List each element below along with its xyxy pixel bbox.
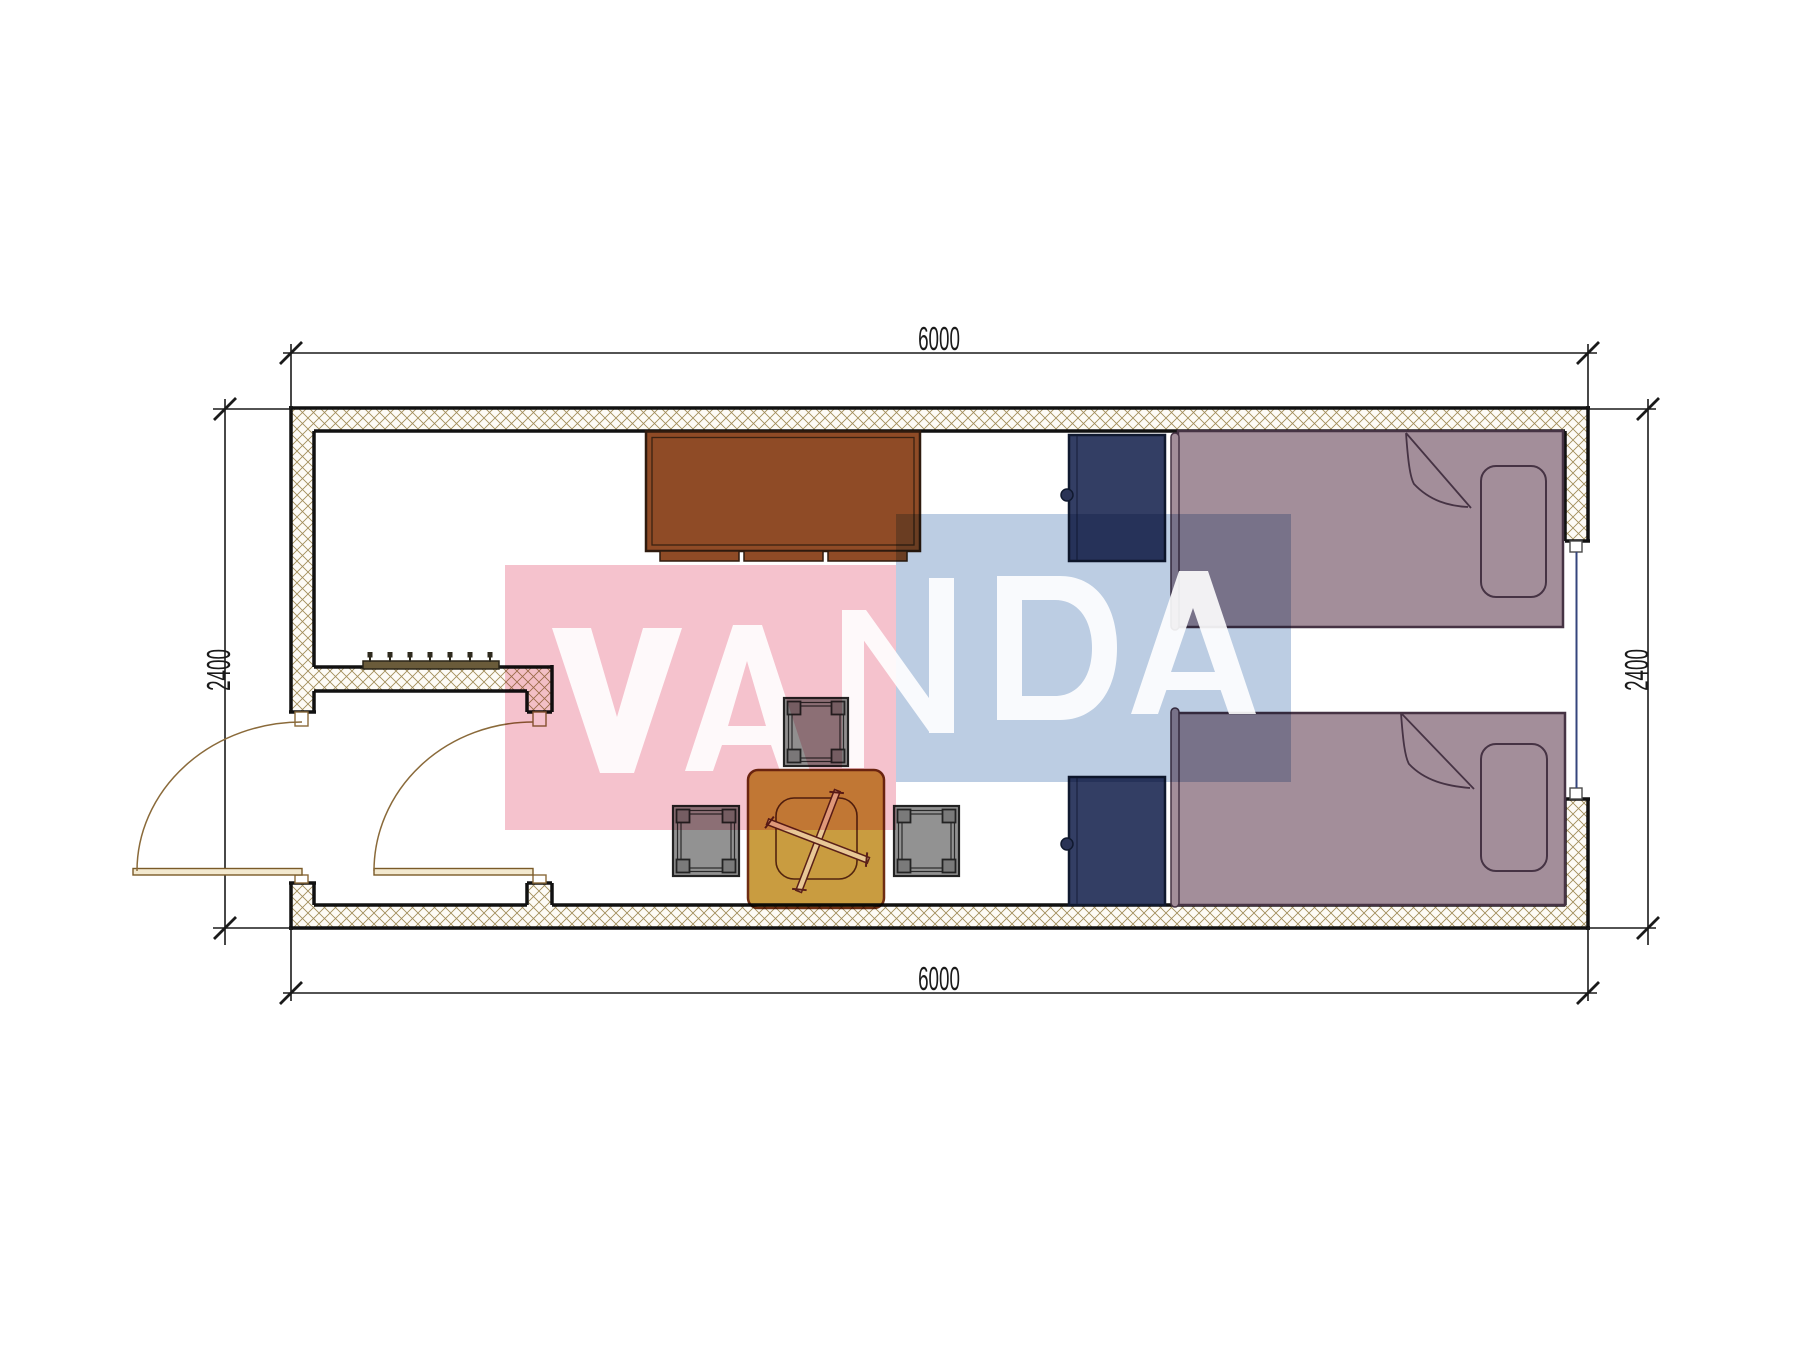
svg-text:6000: 6000 <box>918 961 960 998</box>
svg-text:2400: 2400 <box>201 649 238 691</box>
svg-text:6000: 6000 <box>918 321 960 358</box>
svg-text:2400: 2400 <box>1619 649 1656 691</box>
